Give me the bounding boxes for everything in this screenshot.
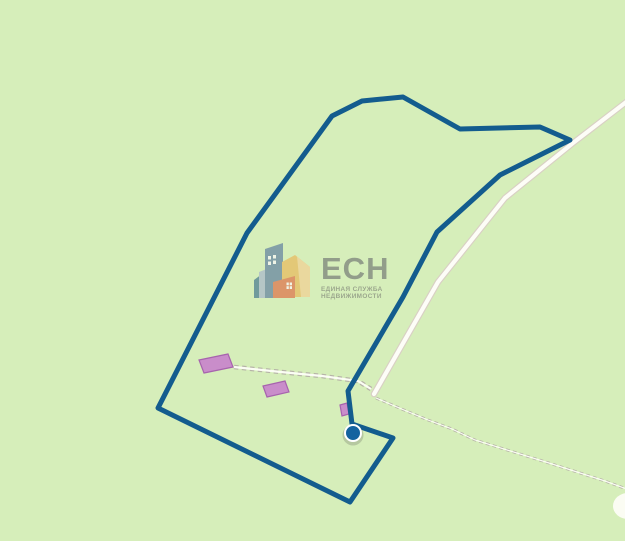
plot-boundary-polygon[interactable] bbox=[158, 97, 570, 502]
track-right bbox=[376, 398, 625, 491]
location-marker-icon[interactable] bbox=[345, 425, 361, 441]
road-casing bbox=[374, 96, 625, 394]
building-footprint bbox=[263, 381, 289, 397]
map-canvas[interactable]: ЕСН ЕДИНАЯ СЛУЖБА НЕДВИЖИМОСТИ bbox=[0, 0, 625, 541]
road bbox=[374, 96, 625, 394]
map-clearing bbox=[613, 493, 625, 519]
map-overlay-layer bbox=[0, 0, 625, 541]
building-footprint bbox=[199, 354, 233, 373]
track-right-casing bbox=[376, 398, 625, 491]
